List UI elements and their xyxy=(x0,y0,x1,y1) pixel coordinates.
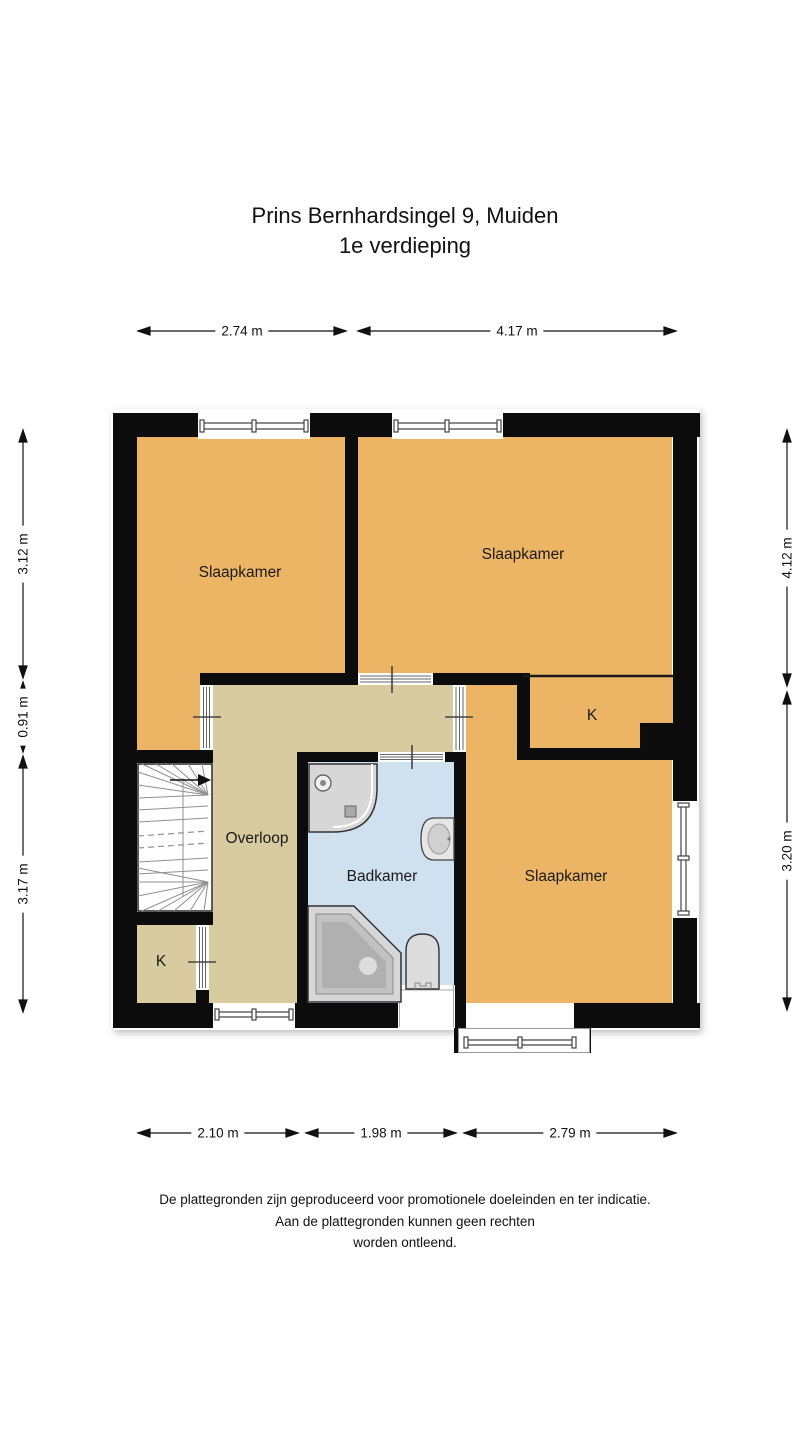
door-bedroom-top-left xyxy=(200,685,213,750)
window-bathroom-bottom xyxy=(398,985,455,1028)
room-label-bedroom-bottom-right: Slaapkamer xyxy=(525,868,608,886)
dim-top-right: 4.17 m xyxy=(490,324,543,339)
wall-closet-door-stub xyxy=(196,990,209,1003)
wall-stairs-bottom xyxy=(137,912,213,925)
wall-closet-right-block xyxy=(640,723,673,760)
door-bedroom-bottom-right xyxy=(453,685,466,752)
room-label-bathroom: Badkamer xyxy=(347,868,418,886)
door-closet-bottom-left xyxy=(196,925,209,990)
disclaimer: De plattegronden zijn geproduceerd voor … xyxy=(0,1189,810,1254)
page-title: Prins Bernhardsingel 9, Muiden 1e verdie… xyxy=(0,201,810,261)
wall-bathroom-left xyxy=(297,762,308,1003)
bay-window-opening xyxy=(466,1003,574,1028)
dim-right-1: 4.12 m xyxy=(780,529,795,586)
stairwell-floor xyxy=(137,763,213,912)
window-top-left xyxy=(198,411,310,439)
wall-bathroom-top-left xyxy=(297,752,378,762)
wall-bedroom-partition xyxy=(454,752,466,1053)
room-label-bedroom-top-right: Slaapkamer xyxy=(482,546,565,564)
wall-closet-right-bottom xyxy=(517,748,645,760)
room-label-closet-bottom-left: K xyxy=(156,953,166,971)
disclaimer-line-2: Aan de plattegronden kunnen geen rechten xyxy=(0,1211,810,1233)
room-label-bedroom-top-left: Slaapkamer xyxy=(199,564,282,582)
dim-left-2: 0.91 m xyxy=(16,688,31,745)
window-landing-bottom xyxy=(213,1003,295,1028)
dim-bottom-2: 1.98 m xyxy=(354,1126,407,1141)
page-title-floor: 1e verdieping xyxy=(0,231,810,261)
room-label-landing: Overloop xyxy=(226,830,289,848)
wall-mid-left xyxy=(200,673,358,685)
dim-bottom-3: 2.79 m xyxy=(543,1126,596,1141)
wall-exterior-right xyxy=(673,413,697,1028)
dim-bottom-1: 2.10 m xyxy=(191,1126,244,1141)
room-landing-corridor xyxy=(209,752,297,1003)
door-bathroom xyxy=(378,752,445,762)
room-label-closet-top-right: K xyxy=(587,707,597,725)
floor-plan-page: Prins Bernhardsingel 9, Muiden 1e verdie… xyxy=(0,0,810,1440)
window-top-right xyxy=(392,411,503,439)
bay-window xyxy=(458,1028,590,1053)
page-title-address: Prins Bernhardsingel 9, Muiden xyxy=(0,201,810,231)
wall-exterior-left xyxy=(113,413,137,1028)
wall-stairs-top xyxy=(137,750,213,763)
dim-right-2: 3.20 m xyxy=(780,822,795,879)
wall-bathroom-top-right xyxy=(445,752,454,762)
dim-top-left: 2.74 m xyxy=(215,324,268,339)
door-bedroom-top-right xyxy=(358,673,433,685)
disclaimer-line-1: De plattegronden zijn geproduceerd voor … xyxy=(0,1189,810,1211)
dim-left-3: 3.17 m xyxy=(16,855,31,912)
disclaimer-line-3: worden ontleend. xyxy=(0,1232,810,1254)
wall-bedroom-divider xyxy=(345,437,358,675)
dim-left-1: 3.12 m xyxy=(16,525,31,582)
wall-mid-right xyxy=(433,673,530,685)
window-right xyxy=(673,801,697,918)
room-landing-upper xyxy=(203,685,453,752)
